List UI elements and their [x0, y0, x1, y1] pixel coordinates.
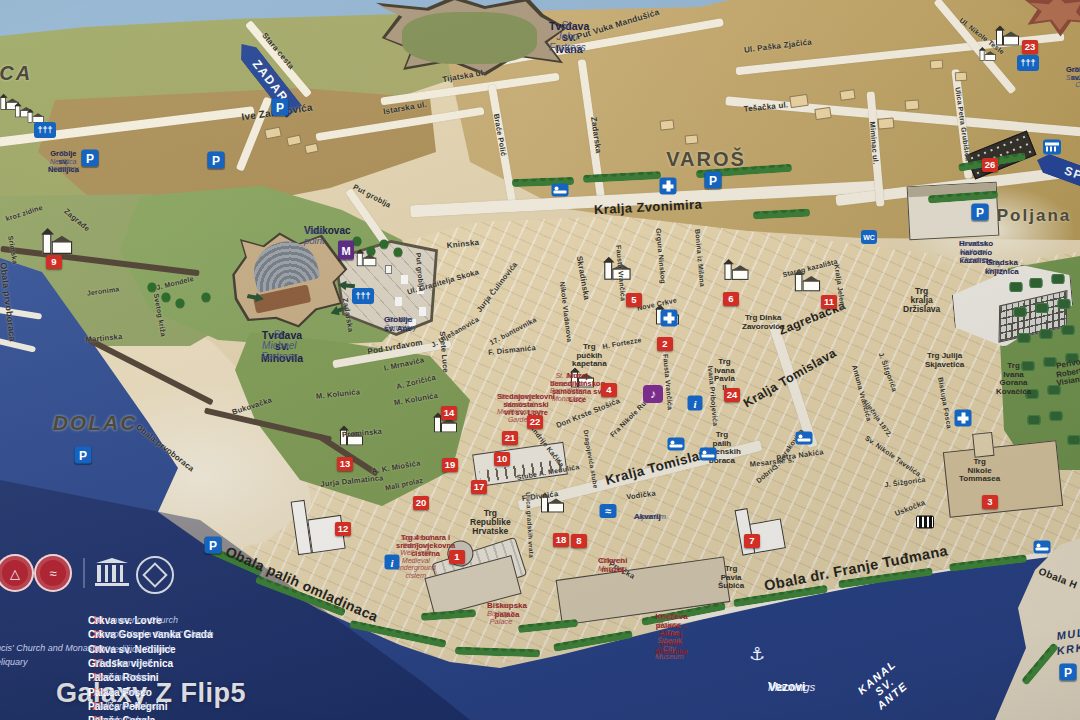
map-marker: 21: [502, 431, 518, 445]
place-name-english: Aquarium: [634, 513, 666, 521]
map-marker: 19: [442, 458, 458, 472]
park-bush: [1018, 333, 1031, 343]
place-name: Trg Julija Skjavetića: [925, 352, 964, 369]
info-icon: i: [385, 555, 400, 570]
place-name: Trg Republike Hrvatske: [470, 509, 511, 537]
info-icon: i: [688, 396, 703, 411]
park-bush: [1058, 299, 1071, 309]
st-john-fortress-illustration: [372, 0, 567, 80]
place-name: Trg kralja Držislava: [903, 287, 940, 315]
place-name-english: Square of the Four Wells with Medieval u…: [396, 534, 436, 579]
place-name: Trg Pavla Šubića: [718, 565, 744, 591]
house-block: [878, 117, 895, 129]
place-name-english: Croatian National Theatre: [959, 240, 987, 264]
legend-partial-text: ncis' Church and Monastery: [0, 643, 107, 653]
place-name-english: St. Luce Treasury of Benedictine Monaste…: [550, 372, 587, 402]
church-icon: [42, 232, 73, 254]
stairs-icon: [916, 516, 934, 529]
place-name-english: View point: [304, 226, 325, 247]
parking-icon: P: [1060, 664, 1077, 681]
mflag-icon: M: [338, 241, 354, 260]
anchor-icon: ⚓: [746, 643, 768, 665]
park-bush: [1052, 274, 1065, 284]
world-heritage-logo: [136, 556, 174, 594]
park-bush: [1036, 303, 1049, 313]
church-icon: [996, 29, 1020, 46]
toilets-icon: WC: [861, 230, 877, 244]
map-marker: 7: [744, 534, 760, 548]
tree: [380, 240, 389, 249]
map-marker: 12: [335, 522, 351, 536]
parking-icon: P: [208, 152, 225, 169]
map-marker: 26: [982, 158, 998, 172]
house-block: [955, 72, 968, 82]
museum-icon: [1043, 140, 1061, 155]
church-building: [734, 498, 788, 557]
place-name-english: The Bishop's Palace: [487, 602, 515, 626]
map-marker: 22: [527, 415, 543, 429]
map-marker: 10: [494, 452, 510, 466]
st-michael-fortress-illustration: [222, 226, 350, 334]
legend-name-english: Rossini Palace: [94, 672, 154, 682]
house-block: [789, 94, 808, 108]
place-name-english: Moorings: [768, 681, 815, 693]
map-marker: 13: [337, 457, 353, 471]
place-name: Trg pučkih kapetana: [572, 343, 607, 369]
place-name-english: Church Museum: [598, 557, 627, 573]
legend-name-english: St. Lawrence Church: [94, 615, 178, 625]
map-marker: 4: [601, 383, 617, 397]
house-block: [814, 107, 831, 120]
park-bush: [1028, 415, 1041, 425]
tree: [202, 293, 211, 302]
split-sign-label: SP: [1062, 164, 1080, 184]
city-logo: ≈: [34, 554, 72, 592]
district-label: ICA: [0, 62, 32, 85]
place-name-english: City library: [985, 259, 1005, 275]
parking-icon: P: [75, 447, 92, 464]
logo-divider: [84, 558, 85, 588]
aquarium-icon: ≈: [600, 504, 617, 518]
place-name: Trg Nikole Tommasea: [959, 458, 1000, 484]
district-label: Poljana: [997, 206, 1071, 226]
house-block: [660, 119, 675, 130]
map-marker: 8: [571, 534, 587, 548]
house-block: [685, 134, 699, 144]
bed-icon: [700, 448, 717, 461]
church-icon: [357, 252, 377, 266]
cemetery-icon: †††: [34, 122, 56, 138]
park-bush: [1030, 278, 1043, 288]
map-marker: 20: [413, 496, 429, 510]
map-marker: 18: [553, 533, 569, 547]
legend-name-english: The Town Hall: [94, 658, 151, 668]
place-name-english: Duke's Palace – The Šibenik City Museum: [655, 613, 684, 662]
map-marker: 1: [449, 550, 465, 564]
map-marker: 3: [982, 495, 998, 509]
tree: [176, 299, 185, 308]
park-bush: [1010, 282, 1023, 292]
culture-icon: ♪: [643, 385, 663, 403]
tree: [394, 248, 403, 257]
place-name: Trg Ivana Gorana Kovačića: [996, 362, 1031, 397]
parking-icon: P: [205, 537, 222, 554]
church-icon: [795, 273, 821, 292]
place-name: Perivoj Roberta Visianija: [1053, 357, 1080, 388]
map-marker: 11: [821, 295, 837, 309]
place-name: Trg Dinka Zavorovića: [742, 314, 784, 331]
legend-name-english: Fosco Palace: [94, 687, 149, 697]
cemetery-icon: †††: [1017, 55, 1039, 71]
tree: [162, 293, 171, 302]
park-bush: [1050, 411, 1063, 421]
cross-icon: [660, 178, 677, 195]
bed-icon: [668, 438, 685, 451]
place-name-english: St. Nediljica Cemetery: [48, 150, 78, 173]
park-bush: [1040, 329, 1053, 339]
place-name-english: St. Saviour C: [1066, 66, 1080, 89]
district-label: VAROŠ: [666, 148, 746, 171]
unesco-logo: [93, 554, 131, 592]
map-marker: 9: [46, 255, 62, 269]
park-bush: [1014, 307, 1027, 317]
house-block: [930, 60, 944, 70]
cross-icon: [661, 310, 678, 327]
cross-icon: [955, 410, 972, 427]
map-marker: 23: [1022, 40, 1038, 54]
house-block: [905, 99, 920, 110]
parking-icon: P: [82, 150, 99, 167]
map-marker: 5: [626, 293, 642, 307]
legend-name-english: Pellegrini Palace: [94, 701, 161, 711]
cemetery-icon: †††: [352, 288, 374, 304]
park-bush: [1068, 435, 1080, 445]
map-marker: 17: [471, 480, 487, 494]
place-name-english: St. John Fortress: [549, 21, 586, 53]
sibenik-tourist-map-photo: ZADAR SP △ ≈ Galaxy Z Flip5 Ive Zaninovi…: [0, 0, 1080, 720]
church-icon: [724, 262, 749, 280]
district-label: DOLAC: [53, 411, 138, 435]
place-name-english: St. Michael Fortress: [261, 330, 298, 362]
bed-icon: [552, 184, 569, 197]
map-marker: 14: [441, 406, 457, 420]
park-bush: [1062, 325, 1075, 335]
parking-icon: P: [705, 172, 722, 189]
legend-name-english: Canala Palace: [94, 715, 153, 720]
church-icon: [980, 49, 997, 61]
bed-icon: [796, 432, 813, 445]
map-marker: 2: [657, 337, 673, 351]
map-marker: 24: [724, 388, 740, 402]
map-marker: 6: [723, 292, 739, 306]
parking-icon: P: [272, 99, 289, 116]
house-block: [839, 89, 855, 101]
bed-icon: [1034, 541, 1051, 554]
legend-name-english: "Gospe Vanka Grada" Church: [94, 629, 214, 639]
legend-partial-text: eliquary: [0, 657, 28, 667]
place-name-english: St. Ana Cemetery: [384, 316, 417, 332]
parking-icon: P: [972, 204, 989, 221]
